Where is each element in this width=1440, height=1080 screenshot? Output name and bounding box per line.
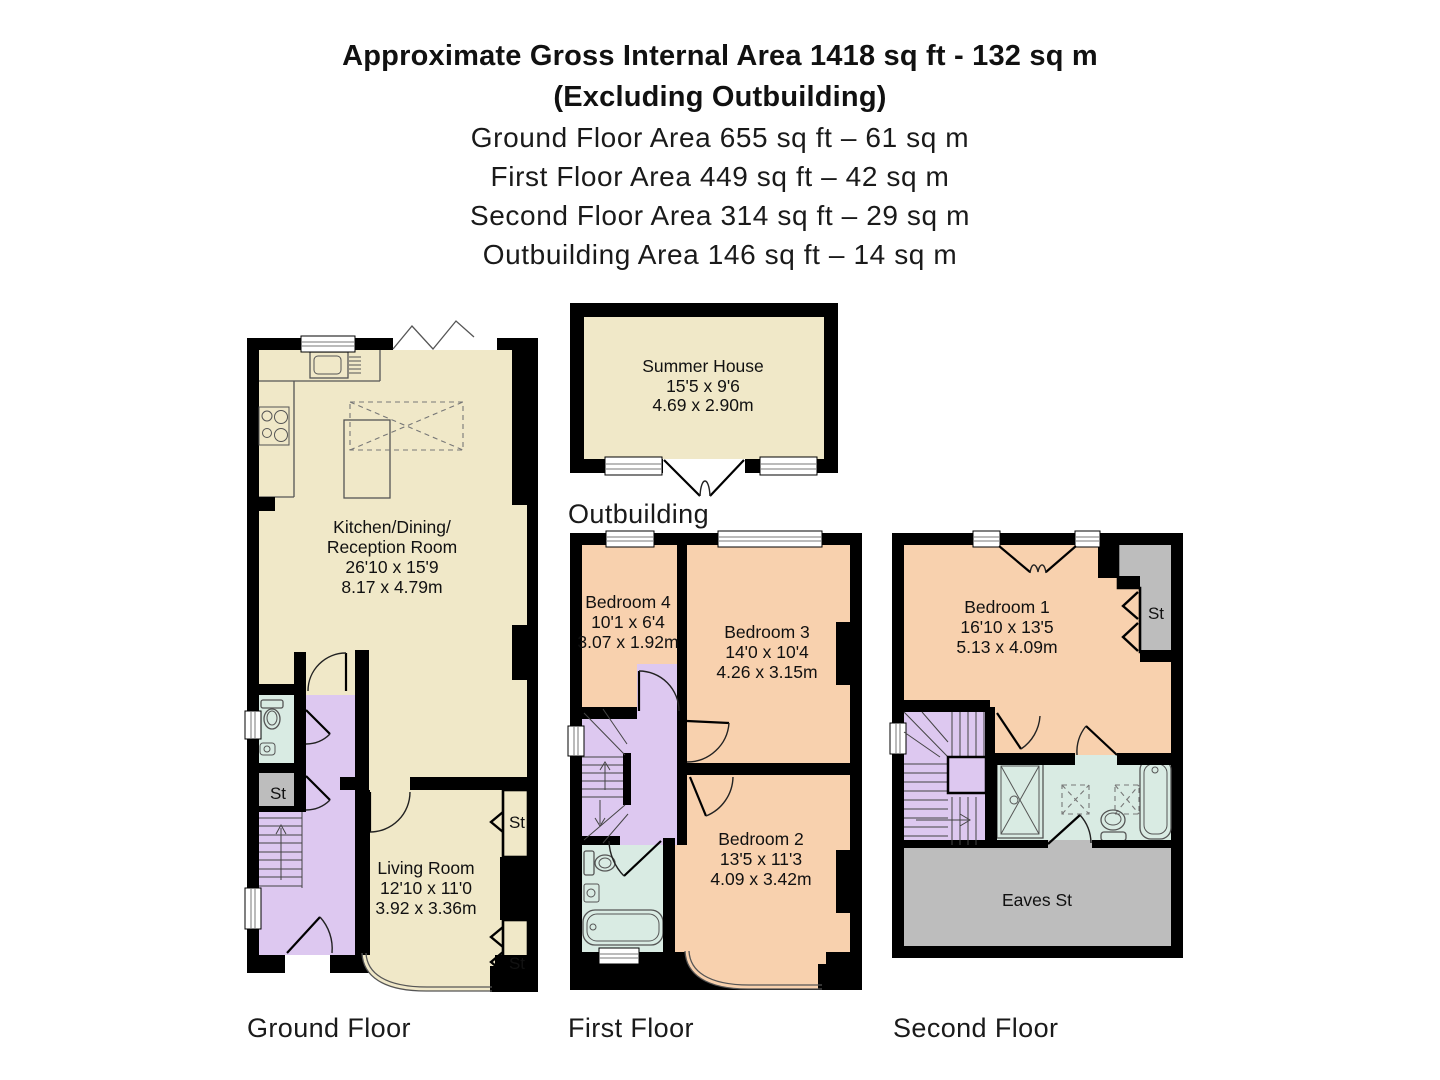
bed2-dims-m: 4.09 x 3.42m (710, 869, 811, 889)
bed4-dims-m: 3.07 x 1.92m (577, 632, 678, 652)
summer-house-name: Summer House (642, 356, 764, 376)
eaves-st-label: Eaves St (1002, 890, 1072, 910)
floorplan-canvas: Summer House 15'5 x 9'6 4.69 x 2.90m (0, 0, 1440, 1080)
bed2-name: Bedroom 2 (718, 829, 804, 849)
kitchen-name-1: Kitchen/Dining/ (333, 517, 451, 537)
second-floor-caption: Second Floor (893, 1013, 1058, 1044)
first-floor-plan: Bedroom 4 10'1 x 6'4 3.07 x 1.92m Bedroo… (568, 531, 862, 990)
bed4-name: Bedroom 4 (585, 592, 671, 612)
st-label: St (1148, 604, 1164, 623)
second-floor-plan: Bedroom 1 16'10 x 13'5 5.13 x 4.09m St E… (890, 531, 1183, 958)
st-left-label: St (270, 784, 286, 803)
outbuilding-caption: Outbuilding (568, 499, 709, 530)
bed3-dims-ft: 14'0 x 10'4 (725, 642, 809, 662)
bed1-dims-m: 5.13 x 4.09m (956, 637, 1057, 657)
bed1-dims-ft: 16'10 x 13'5 (960, 617, 1053, 637)
kitchen-dims-m: 8.17 x 4.79m (341, 577, 442, 597)
first-floor-caption: First Floor (568, 1013, 694, 1044)
front-door-opening (285, 955, 330, 973)
bed3-name: Bedroom 3 (724, 622, 810, 642)
ground-floor-caption: Ground Floor (247, 1013, 411, 1044)
bed1-name: Bedroom 1 (964, 597, 1050, 617)
living-name: Living Room (377, 858, 474, 878)
outbuilding-plan: Summer House 15'5 x 9'6 4.69 x 2.90m (570, 303, 838, 496)
living-dims-m: 3.92 x 3.36m (375, 898, 476, 918)
ground-floor-plan: Kitchen/Dining/ Reception Room 26'10 x 1… (245, 321, 538, 992)
summer-house-dims-m: 4.69 x 2.90m (652, 395, 753, 415)
bed2-dims-ft: 13'5 x 11'3 (720, 849, 802, 869)
living-dims-ft: 12'10 x 11'0 (380, 878, 472, 898)
st-right-top-label: St (509, 813, 525, 832)
floorplan-page: Approximate Gross Internal Area 1418 sq … (0, 0, 1440, 1080)
kitchen-name-2: Reception Room (327, 537, 457, 557)
kitchen-dims-ft: 26'10 x 15'9 (345, 557, 438, 577)
summer-house-dims-ft: 15'5 x 9'6 (666, 376, 740, 396)
st-right-bottom-label: St (509, 954, 525, 973)
garden-opening (393, 336, 497, 350)
bed4-dims-ft: 10'1 x 6'4 (591, 612, 665, 632)
bed3-dims-m: 4.26 x 3.15m (716, 662, 817, 682)
